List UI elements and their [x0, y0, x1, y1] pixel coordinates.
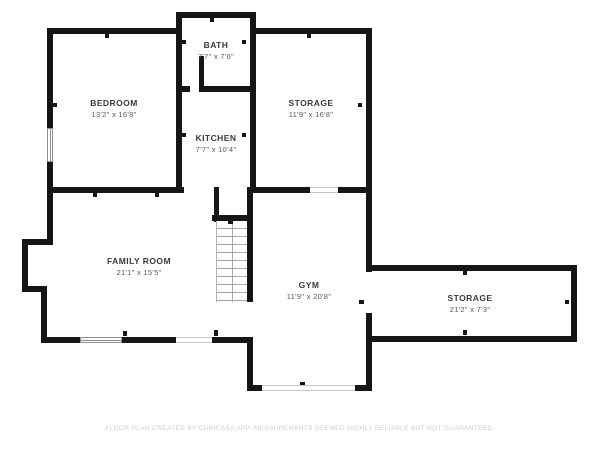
- room-name: STORAGE: [447, 293, 492, 303]
- wall-wing-right: [571, 265, 577, 342]
- wall-tick: [565, 300, 569, 304]
- wall-tick: [155, 193, 159, 197]
- opening-family-bottom: [176, 337, 212, 343]
- room-dimensions: 7'7" x 7'6": [198, 52, 234, 61]
- room-name: STORAGE: [288, 98, 333, 108]
- wall-left-lower: [41, 286, 47, 343]
- room-dimensions: 11'9" x 16'8": [288, 110, 333, 119]
- wall-tick: [463, 330, 467, 335]
- wall-tick: [182, 40, 186, 44]
- wall-tick: [123, 331, 127, 336]
- wall-kitchen-foot-left: [176, 187, 184, 193]
- wall-tick: [463, 271, 467, 275]
- wall-top-left: [47, 28, 182, 34]
- room-label-storage-wing: STORAGE 21'2" x 7'3": [447, 293, 492, 314]
- room-name: BATH: [198, 40, 234, 50]
- wall-stair-right: [247, 187, 253, 302]
- room-dimensions: 21'2" x 7'3": [447, 305, 492, 314]
- wall-bedroom-family-divider: [47, 187, 182, 193]
- room-label-kitchen: KITCHEN 7'7" x 10'4": [196, 133, 237, 154]
- floor-plan: BATH 7'7" x 7'6" BEDROOM 13'2" x 16'8" S…: [0, 0, 600, 450]
- window-left-wall: [47, 128, 53, 162]
- room-name: KITCHEN: [196, 133, 237, 143]
- wall-tick: [210, 18, 214, 22]
- footer-disclaimer: FLOOR PLAN CREATED BY CUBICASA APP. MEAS…: [0, 425, 600, 432]
- opening-storage-bottom: [310, 187, 338, 193]
- wall-tick: [53, 103, 57, 107]
- wall-kitchen-storage-divider: [250, 12, 256, 193]
- wall-tick: [182, 133, 186, 137]
- wall-tick: [105, 34, 109, 38]
- wall-bath-bottom-a: [176, 86, 190, 92]
- wall-gym-left-foot: [247, 385, 262, 391]
- wall-tick: [358, 103, 362, 107]
- room-name: FAMILY ROOM: [107, 256, 171, 266]
- wall-family-bottom-b: [122, 337, 176, 343]
- room-label-family-room: FAMILY ROOM 21'1" x 15'5": [107, 256, 171, 277]
- room-dimensions: 13'2" x 16'8": [90, 110, 138, 119]
- wall-gym-right-lower: [366, 313, 372, 391]
- room-name: BEDROOM: [90, 98, 138, 108]
- room-dimensions: 11'9" x 20'8": [287, 292, 331, 301]
- room-name: GYM: [287, 280, 331, 290]
- wall-tick: [214, 330, 218, 336]
- wall-wing-top: [366, 265, 577, 271]
- wall-tick: [300, 382, 305, 385]
- room-label-bath: BATH 7'7" x 7'6": [198, 40, 234, 61]
- wall-tick: [242, 40, 246, 44]
- room-dimensions: 21'1" x 15'5": [107, 268, 171, 277]
- wall-tick: [359, 300, 364, 304]
- wall-right-exterior-upper: [366, 28, 372, 272]
- wall-storage-bottom-b: [338, 187, 372, 193]
- wall-storage-bottom-a: [247, 187, 310, 193]
- wall-tick: [307, 34, 311, 38]
- window-family-bottom: [80, 337, 122, 343]
- opening-gym-bottom: [262, 385, 355, 391]
- wall-wing-bottom: [366, 336, 577, 342]
- wall-top-right: [250, 28, 372, 34]
- room-label-storage-top: STORAGE 11'9" x 16'8": [288, 98, 333, 119]
- room-label-bedroom: BEDROOM 13'2" x 16'8": [90, 98, 138, 119]
- wall-tick: [228, 221, 233, 224]
- wall-bath-top: [176, 12, 256, 18]
- wall-gym-left: [247, 337, 253, 391]
- wall-tick: [242, 133, 246, 137]
- wall-family-bottom-a: [41, 337, 80, 343]
- room-label-gym: GYM 11'9" x 20'8": [287, 280, 331, 301]
- room-dimensions: 7'7" x 10'4": [196, 145, 237, 154]
- wall-step-out-left: [22, 239, 28, 292]
- stairs: [216, 221, 247, 302]
- wall-bath-bottom-b: [202, 86, 256, 92]
- wall-tick: [93, 193, 97, 197]
